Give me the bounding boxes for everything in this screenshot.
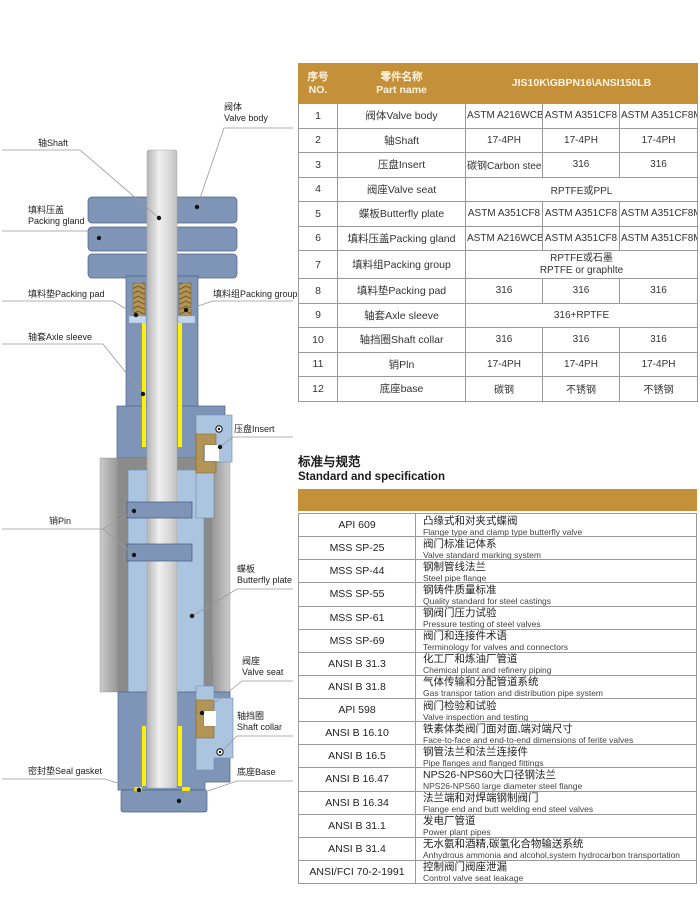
body-wall-right xyxy=(212,458,230,692)
table-cell: 6 xyxy=(299,226,338,251)
parts-table-row: 8填料垫Packing pad316316316 xyxy=(299,279,698,304)
table-cell: 11 xyxy=(299,352,338,377)
table-cell: 填料垫Packing pad xyxy=(338,279,466,304)
table-cell: 填料组Packing group xyxy=(338,251,466,279)
shaft-shape xyxy=(147,150,177,788)
label-valve-body: 阀体Valve body xyxy=(224,102,268,124)
packing-group-shape xyxy=(133,283,145,316)
standard-description: 阀门和连接件术语Terminology for valves and conne… xyxy=(416,630,696,652)
table-cell: ASTM A216WCB xyxy=(466,226,543,251)
table-cell: 底座base xyxy=(338,377,466,402)
table-cell: 填料压盖Packing gland xyxy=(338,226,466,251)
table-cell: 3 xyxy=(299,153,338,178)
label-shaft-collar: 轴挡圈Shaft collar xyxy=(237,711,282,733)
parts-table-row: 11销Pln17-4PH17-4PH17-4PH xyxy=(299,352,698,377)
table-cell: ASTM A216WCB xyxy=(466,104,543,129)
table-cell: 17-4PH xyxy=(466,128,543,153)
standards-table-row: API 598阀门检验和试验Valve inspection and testi… xyxy=(299,698,696,721)
label-valve-seat: 阀座Valve seat xyxy=(242,656,283,678)
standard-description: 化工厂和炼油厂管道Chemical plant and refinery pip… xyxy=(416,653,696,675)
table-cell: 316 xyxy=(620,279,698,304)
standard-description: 阀门检验和试验Valve inspection and testing xyxy=(416,699,696,721)
table-cell: 阀座Valve seat xyxy=(338,177,466,202)
parts-table-row: 10轴挡圈Shaft collar316316316 xyxy=(299,328,698,353)
standards-table-row: API 609凸缘式和对夹式蝶阀Flange type and clamp ty… xyxy=(299,514,696,536)
standard-code: MSS SP-44 xyxy=(299,560,416,582)
table-cell: 5 xyxy=(299,202,338,227)
label-packing-gland: 填料压盖Packing gland xyxy=(28,205,85,227)
standard-code: API 609 xyxy=(299,514,416,536)
parts-table-row: 1阀体Valve bodyASTM A216WCBASTM A351CF8AST… xyxy=(299,104,698,129)
standards-table-row: MSS SP-55钢铸件质量标准Quality standard for ste… xyxy=(299,582,696,605)
standard-code: MSS SP-69 xyxy=(299,630,416,652)
table-cell: 12 xyxy=(299,377,338,402)
standard-description: 控制阀门阀座泄漏Control valve seat leakage xyxy=(416,861,696,883)
table-cell: 17-4PH xyxy=(466,352,543,377)
label-packing-pad: 填料垫Packing pad xyxy=(28,289,105,300)
table-cell: 316 xyxy=(466,279,543,304)
standards-table-row: MSS SP-25阀门标准记体系Valve standard marking s… xyxy=(299,536,696,559)
table-cell: ASTM A351CF8 xyxy=(543,104,620,129)
standard-code: API 598 xyxy=(299,699,416,721)
standard-code: ANSI B 16.47 xyxy=(299,768,416,790)
table-cell: 17-4PH xyxy=(620,352,698,377)
table-cell: ASTM A351CF8 xyxy=(543,226,620,251)
standard-description: NPS26-NPS60大口径钢法兰NPS26-NPS60 large diame… xyxy=(416,768,696,790)
standard-code: MSS SP-61 xyxy=(299,607,416,629)
header-no: 序号NO. xyxy=(299,64,338,104)
standard-description: 阀门标准记体系Valve standard marking system xyxy=(416,537,696,559)
standard-code: ANSI/FCI 70-2-1991 xyxy=(299,861,416,883)
standard-description: 钢管法兰和法兰连接件Pipe flanges and flanged fitti… xyxy=(416,745,696,767)
parts-table-row: 7填料组Packing groupRPTFE或石墨RPTFE or graphl… xyxy=(299,251,698,279)
parts-table-header: 序号NO. 零件名称Part name JIS10K\GBPN16\ANSI15… xyxy=(299,64,698,104)
standard-description: 气体传输和分配管道系统Gas transpor tation and distr… xyxy=(416,676,696,698)
standards-table-row: ANSI/FCI 70-2-1991控制阀门阀座泄漏Control valve … xyxy=(299,860,696,883)
standards-table-row: ANSI B 31.8气体传输和分配管道系统Gas transpor tatio… xyxy=(299,675,696,698)
standards-table-row: ANSI B 16.47NPS26-NPS60大口径钢法兰NPS26-NPS60… xyxy=(299,767,696,790)
standard-code: ANSI B 16.10 xyxy=(299,722,416,744)
table-cell: ASTM A351CF8M xyxy=(620,226,698,251)
table-cell: 9 xyxy=(299,303,338,328)
table-cell: 不锈钢 xyxy=(543,377,620,402)
standard-code: MSS SP-55 xyxy=(299,583,416,605)
standards-table-row: ANSI B 31.3化工厂和炼油厂管道Chemical plant and r… xyxy=(299,652,696,675)
parts-table: 序号NO. 零件名称Part name JIS10K\GBPN16\ANSI15… xyxy=(298,63,698,402)
standard-description: 无水氨和酒精,碳氢化合物输送系统Anhydrous ammonia and al… xyxy=(416,838,696,860)
table-cell: 压盘Insert xyxy=(338,153,466,178)
table-cell: 轴挡圈Shaft collar xyxy=(338,328,466,353)
table-cell: 316 xyxy=(543,328,620,353)
table-cell: 1 xyxy=(299,104,338,129)
table-cell: 10 xyxy=(299,328,338,353)
table-cell: 17-4PH xyxy=(543,352,620,377)
packing-pad-shape xyxy=(178,316,195,323)
standards-table-row: MSS SP-44钢制管线法兰Steel pipe flange xyxy=(299,559,696,582)
table-cell: 17-4PH xyxy=(543,128,620,153)
standards-table-row: MSS SP-69阀门和连接件术语Terminology for valves … xyxy=(299,629,696,652)
standard-code: ANSI B 31.3 xyxy=(299,653,416,675)
parts-table-row: 4阀座Valve seatRPTFE或PPL xyxy=(299,177,698,202)
label-axle-sleeve: 轴套Axle sleeve xyxy=(28,332,92,343)
bore-lining-left xyxy=(118,458,128,692)
table-cell: ASTM A351CF8 xyxy=(543,202,620,227)
base-shape xyxy=(121,790,207,812)
standard-description: 法兰端和对焊端钢制阀门Flange end and butt welding e… xyxy=(416,792,696,814)
standards-table-row: ANSI B 16.34法兰端和对焊端钢制阀门Flange end and bu… xyxy=(299,791,696,814)
table-cell: 碳钢Carbon steel xyxy=(466,153,543,178)
parts-table-row: 12底座base碳钢不锈钢不锈钢 xyxy=(299,377,698,402)
table-cell: 7 xyxy=(299,251,338,279)
label-packing-group: 填料组Packing group xyxy=(213,289,298,300)
parts-table-row: 6填料压盖Packing glandASTM A216WCBASTM A351C… xyxy=(299,226,698,251)
label-pin: 销Pin xyxy=(49,516,71,527)
parts-table-row: 5蝶板Butterfly plateASTM A351CF8ASTM A351C… xyxy=(299,202,698,227)
standard-description: 铁素体类阀门面对面,端对端尺寸Face-to-face and end-to-e… xyxy=(416,722,696,744)
standard-code: ANSI B 31.1 xyxy=(299,815,416,837)
table-cell: 316 xyxy=(466,328,543,353)
table-cell: 316 xyxy=(620,328,698,353)
standard-description: 钢铸件质量标准Quality standard for steel castin… xyxy=(416,583,696,605)
seat-notch xyxy=(204,711,216,726)
pin-shape xyxy=(127,544,192,561)
table-cell: 316 xyxy=(543,153,620,178)
table-cell: 阀体Valve body xyxy=(338,104,466,129)
table-cell: 4 xyxy=(299,177,338,202)
label-base: 底座Base xyxy=(237,767,276,778)
standard-description: 钢阀门压力试验Pressure testing of steel valves xyxy=(416,607,696,629)
page: 阀体Valve body 轴Shaft 填料压盖Packing gland 填料… xyxy=(0,0,700,897)
standard-code: MSS SP-25 xyxy=(299,537,416,559)
table-cell: 销Pln xyxy=(338,352,466,377)
label-butterfly-plate: 蝶板Butterfly plate xyxy=(237,564,292,586)
standard-code: ANSI B 16.34 xyxy=(299,792,416,814)
table-cell: 17-4PH xyxy=(620,128,698,153)
parts-table-row: 9轴套Axle sleeve316+RPTFE xyxy=(299,303,698,328)
parts-table-row: 3压盘Insert碳钢Carbon steel316316 xyxy=(299,153,698,178)
table-cell: 轴Shaft xyxy=(338,128,466,153)
parts-table-row: 2轴Shaft17-4PH17-4PH17-4PH xyxy=(299,128,698,153)
table-cell: 316 xyxy=(620,153,698,178)
insert-notch xyxy=(205,445,219,461)
table-cell: 碳钢 xyxy=(466,377,543,402)
standard-code: ANSI B 16.5 xyxy=(299,745,416,767)
header-part-name: 零件名称Part name xyxy=(338,64,466,104)
table-cell: ASTM A351CF8 xyxy=(466,202,543,227)
table-cell: ASTM A351CF8M xyxy=(620,202,698,227)
table-cell: ASTM A351CF8M xyxy=(620,104,698,129)
standards-header-band xyxy=(298,489,697,511)
standards-table-row: ANSI B 31.4无水氨和酒精,碳氢化合物输送系统Anhydrous amm… xyxy=(299,837,696,860)
standards-table-row: ANSI B 31.1发电厂管道Power plant pipes xyxy=(299,814,696,837)
table-cell: 316 xyxy=(543,279,620,304)
standards-title: 标准与规范 Standard and specification xyxy=(298,455,445,484)
body-wall-left xyxy=(100,458,118,692)
label-seal-gasket: 密封垫Seal gasket xyxy=(28,766,102,777)
table-cell: 2 xyxy=(299,128,338,153)
table-cell: RPTFE或石墨RPTFE or graphlte xyxy=(466,251,698,279)
table-cell: 8 xyxy=(299,279,338,304)
standard-code: ANSI B 31.4 xyxy=(299,838,416,860)
table-cell: RPTFE或PPL xyxy=(466,177,698,202)
table-cell: 蝶板Butterfly plate xyxy=(338,202,466,227)
table-cell: 316+RPTFE xyxy=(466,303,698,328)
standard-code: ANSI B 31.8 xyxy=(299,676,416,698)
standard-description: 凸缘式和对夹式蝶阀Flange type and clamp type butt… xyxy=(416,514,696,536)
standards-table: API 609凸缘式和对夹式蝶阀Flange type and clamp ty… xyxy=(298,513,697,884)
standard-description: 发电厂管道Power plant pipes xyxy=(416,815,696,837)
table-cell: 不锈钢 xyxy=(620,377,698,402)
standards-table-row: ANSI B 16.10铁素体类阀门面对面,端对端尺寸Face-to-face … xyxy=(299,721,696,744)
standard-description: 钢制管线法兰Steel pipe flange xyxy=(416,560,696,582)
header-spec: JIS10K\GBPN16\ANSI150LB xyxy=(466,64,698,104)
label-shaft: 轴Shaft xyxy=(38,138,68,149)
valve-diagram xyxy=(0,0,295,897)
standards-table-row: MSS SP-61钢阀门压力试验Pressure testing of stee… xyxy=(299,606,696,629)
table-cell: 轴套Axle sleeve xyxy=(338,303,466,328)
standards-table-row: ANSI B 16.5钢管法兰和法兰连接件Pipe flanges and fl… xyxy=(299,744,696,767)
label-insert: 压盘Insert xyxy=(234,424,275,435)
packing-pad-shape xyxy=(129,316,146,323)
pin-shape xyxy=(127,502,192,518)
